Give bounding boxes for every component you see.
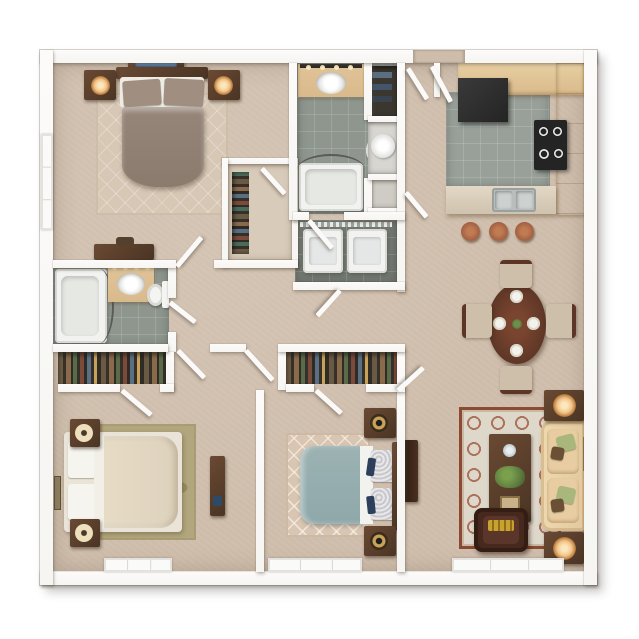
- bedroom-three-bed: [64, 432, 182, 532]
- master-nightstand-right: [208, 70, 240, 100]
- exterior-wall: [40, 572, 597, 585]
- bar-stool: [515, 222, 534, 241]
- accent-pillow: [366, 458, 376, 477]
- desk-chair: [116, 237, 134, 246]
- wall: [168, 332, 176, 352]
- sink-bowl: [495, 191, 512, 209]
- plant: [495, 466, 525, 488]
- walk-in-closet-clothes: [232, 172, 249, 254]
- exterior-wall: [40, 50, 597, 63]
- dining-chair: [462, 304, 492, 338]
- page: { "scene": { "kind": "3d-rendered-apartm…: [0, 0, 639, 639]
- stove: [534, 120, 567, 170]
- nightstand: [70, 519, 100, 547]
- towel-stack: [372, 72, 392, 78]
- wall: [222, 158, 298, 164]
- end-table: [544, 390, 584, 421]
- table-lamp: [75, 524, 93, 542]
- linen-closet: [368, 66, 398, 116]
- vanity-bulb: [334, 65, 339, 70]
- oval-sink: [117, 273, 145, 295]
- bedroom-three-closet: [58, 352, 168, 384]
- place-setting: [493, 317, 506, 330]
- pillow: [68, 442, 96, 478]
- bathroom-vanity: [298, 64, 364, 97]
- wall: [222, 158, 228, 266]
- sofa-pillow-brown: [550, 446, 565, 461]
- dining-table: [488, 284, 546, 364]
- vanity-bulb: [348, 65, 353, 70]
- vanity-bulb: [306, 65, 311, 70]
- bedroom-three-window: [104, 558, 172, 572]
- closet-front-wall: [58, 384, 120, 392]
- folded-sheet: [94, 434, 104, 530]
- dryer: [347, 229, 387, 273]
- accent-pillow-yellow: [488, 520, 514, 531]
- kitchen-double-sink: [492, 188, 536, 212]
- dining-chair: [500, 260, 532, 288]
- wall: [364, 63, 372, 120]
- place-setting: [510, 290, 523, 303]
- nightstand: [70, 419, 100, 447]
- wall: [289, 63, 297, 220]
- sink-bowl: [516, 191, 533, 209]
- sofa-pillow-brown: [550, 498, 565, 513]
- sofa: [541, 421, 585, 531]
- table-lamp: [370, 414, 388, 432]
- wall: [256, 390, 264, 572]
- master-desk: [94, 244, 154, 260]
- wall: [344, 212, 405, 220]
- table-lamp: [214, 76, 233, 95]
- bedroom-two-closet: [286, 352, 398, 384]
- closet-front-wall: [160, 384, 174, 392]
- vanity-bulb: [320, 65, 325, 70]
- dryer-lid: [353, 237, 381, 265]
- centerpiece: [512, 319, 522, 329]
- wall: [293, 282, 405, 290]
- place-setting: [527, 317, 540, 330]
- wall: [53, 260, 176, 268]
- bar-stool: [461, 222, 480, 241]
- bar-stool: [489, 222, 508, 241]
- bathtub: [299, 163, 363, 211]
- living-room-sliding-window: [452, 558, 564, 572]
- burner: [538, 126, 549, 137]
- end-table-lamp: [553, 537, 576, 560]
- master-duvet: [122, 107, 204, 187]
- wall: [368, 174, 400, 180]
- burner: [552, 126, 563, 137]
- bedroom-two-window: [268, 558, 362, 572]
- master-window: [41, 134, 53, 230]
- tub-basin: [61, 276, 99, 336]
- nightstand: [364, 408, 396, 438]
- pillow: [68, 484, 96, 520]
- wall: [210, 344, 246, 352]
- closet-front-wall: [286, 384, 314, 392]
- accent-pillow: [366, 496, 376, 515]
- master-pillow-right: [163, 78, 204, 107]
- bedroom-three-desk: [210, 456, 225, 516]
- exterior-wall: [584, 50, 597, 585]
- wall: [293, 212, 309, 220]
- master-pillow-left: [122, 79, 162, 108]
- refrigerator: [458, 78, 508, 122]
- towel-stack: [372, 84, 392, 90]
- wall: [53, 344, 168, 352]
- exterior-wall: [40, 50, 53, 585]
- wall: [397, 63, 405, 292]
- cream-duvet: [98, 436, 178, 528]
- wall: [214, 260, 298, 268]
- teal-duvet: [300, 446, 364, 524]
- decor-orb: [503, 444, 516, 457]
- storage-shelf: [368, 180, 398, 208]
- wall: [368, 116, 400, 122]
- table-lamp: [91, 76, 110, 95]
- nightstand: [364, 526, 396, 556]
- place-setting: [510, 344, 523, 357]
- burner: [538, 148, 550, 160]
- end-table-lamp: [553, 394, 576, 417]
- table-lamp: [75, 424, 93, 442]
- dining-chair: [500, 366, 532, 394]
- table-lamp: [370, 532, 388, 550]
- floor-plan: [40, 50, 597, 585]
- tub-basin: [305, 169, 357, 205]
- wall: [278, 344, 405, 352]
- wall-art: [54, 476, 61, 510]
- laptop: [213, 496, 222, 506]
- water-heater: [371, 134, 395, 158]
- tv-console: [404, 440, 418, 502]
- water-heater-closet: [368, 122, 398, 174]
- entry-opening: [413, 50, 465, 63]
- master-nightstand-left: [84, 70, 116, 100]
- oval-sink: [316, 72, 346, 94]
- dining-chair: [546, 304, 576, 338]
- armchair: [474, 508, 528, 552]
- burner: [553, 148, 564, 159]
- wall: [278, 352, 286, 390]
- towel-stack: [372, 96, 392, 102]
